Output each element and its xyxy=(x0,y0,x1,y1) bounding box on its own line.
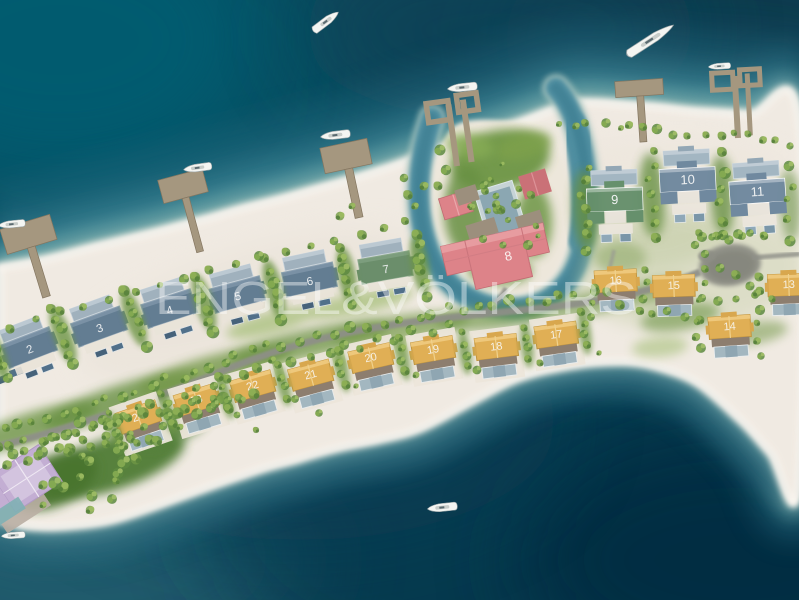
svg-text:19: 19 xyxy=(426,343,440,357)
svg-text:11: 11 xyxy=(750,184,765,200)
svg-text:ENGEL&VÖLKERS: ENGEL&VÖLKERS xyxy=(155,272,637,324)
svg-text:17: 17 xyxy=(549,328,563,342)
svg-text:9: 9 xyxy=(611,192,619,207)
svg-text:13: 13 xyxy=(782,279,795,291)
svg-text:14: 14 xyxy=(723,321,736,334)
svg-text:15: 15 xyxy=(667,280,680,292)
svg-text:18: 18 xyxy=(490,340,504,353)
svg-text:10: 10 xyxy=(680,172,695,188)
